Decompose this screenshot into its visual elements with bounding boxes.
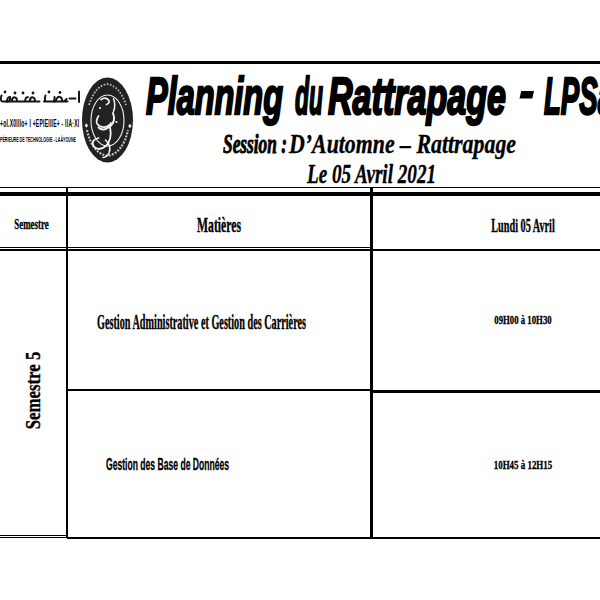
svg-text:du: du — [295, 67, 323, 125]
svg-text:D’Automne – Rattrapage: D’Automne – Rattrapage — [288, 129, 516, 159]
svg-text:Session :: Session : — [223, 129, 287, 159]
svg-text:Le 05 Avril 2021: Le 05 Avril 2021 — [306, 159, 436, 189]
svg-text:Rattrapage: Rattrapage — [328, 67, 506, 125]
svg-text:Planning: Planning — [146, 67, 283, 125]
svg-text:LPSa: LPSa — [544, 67, 600, 125]
